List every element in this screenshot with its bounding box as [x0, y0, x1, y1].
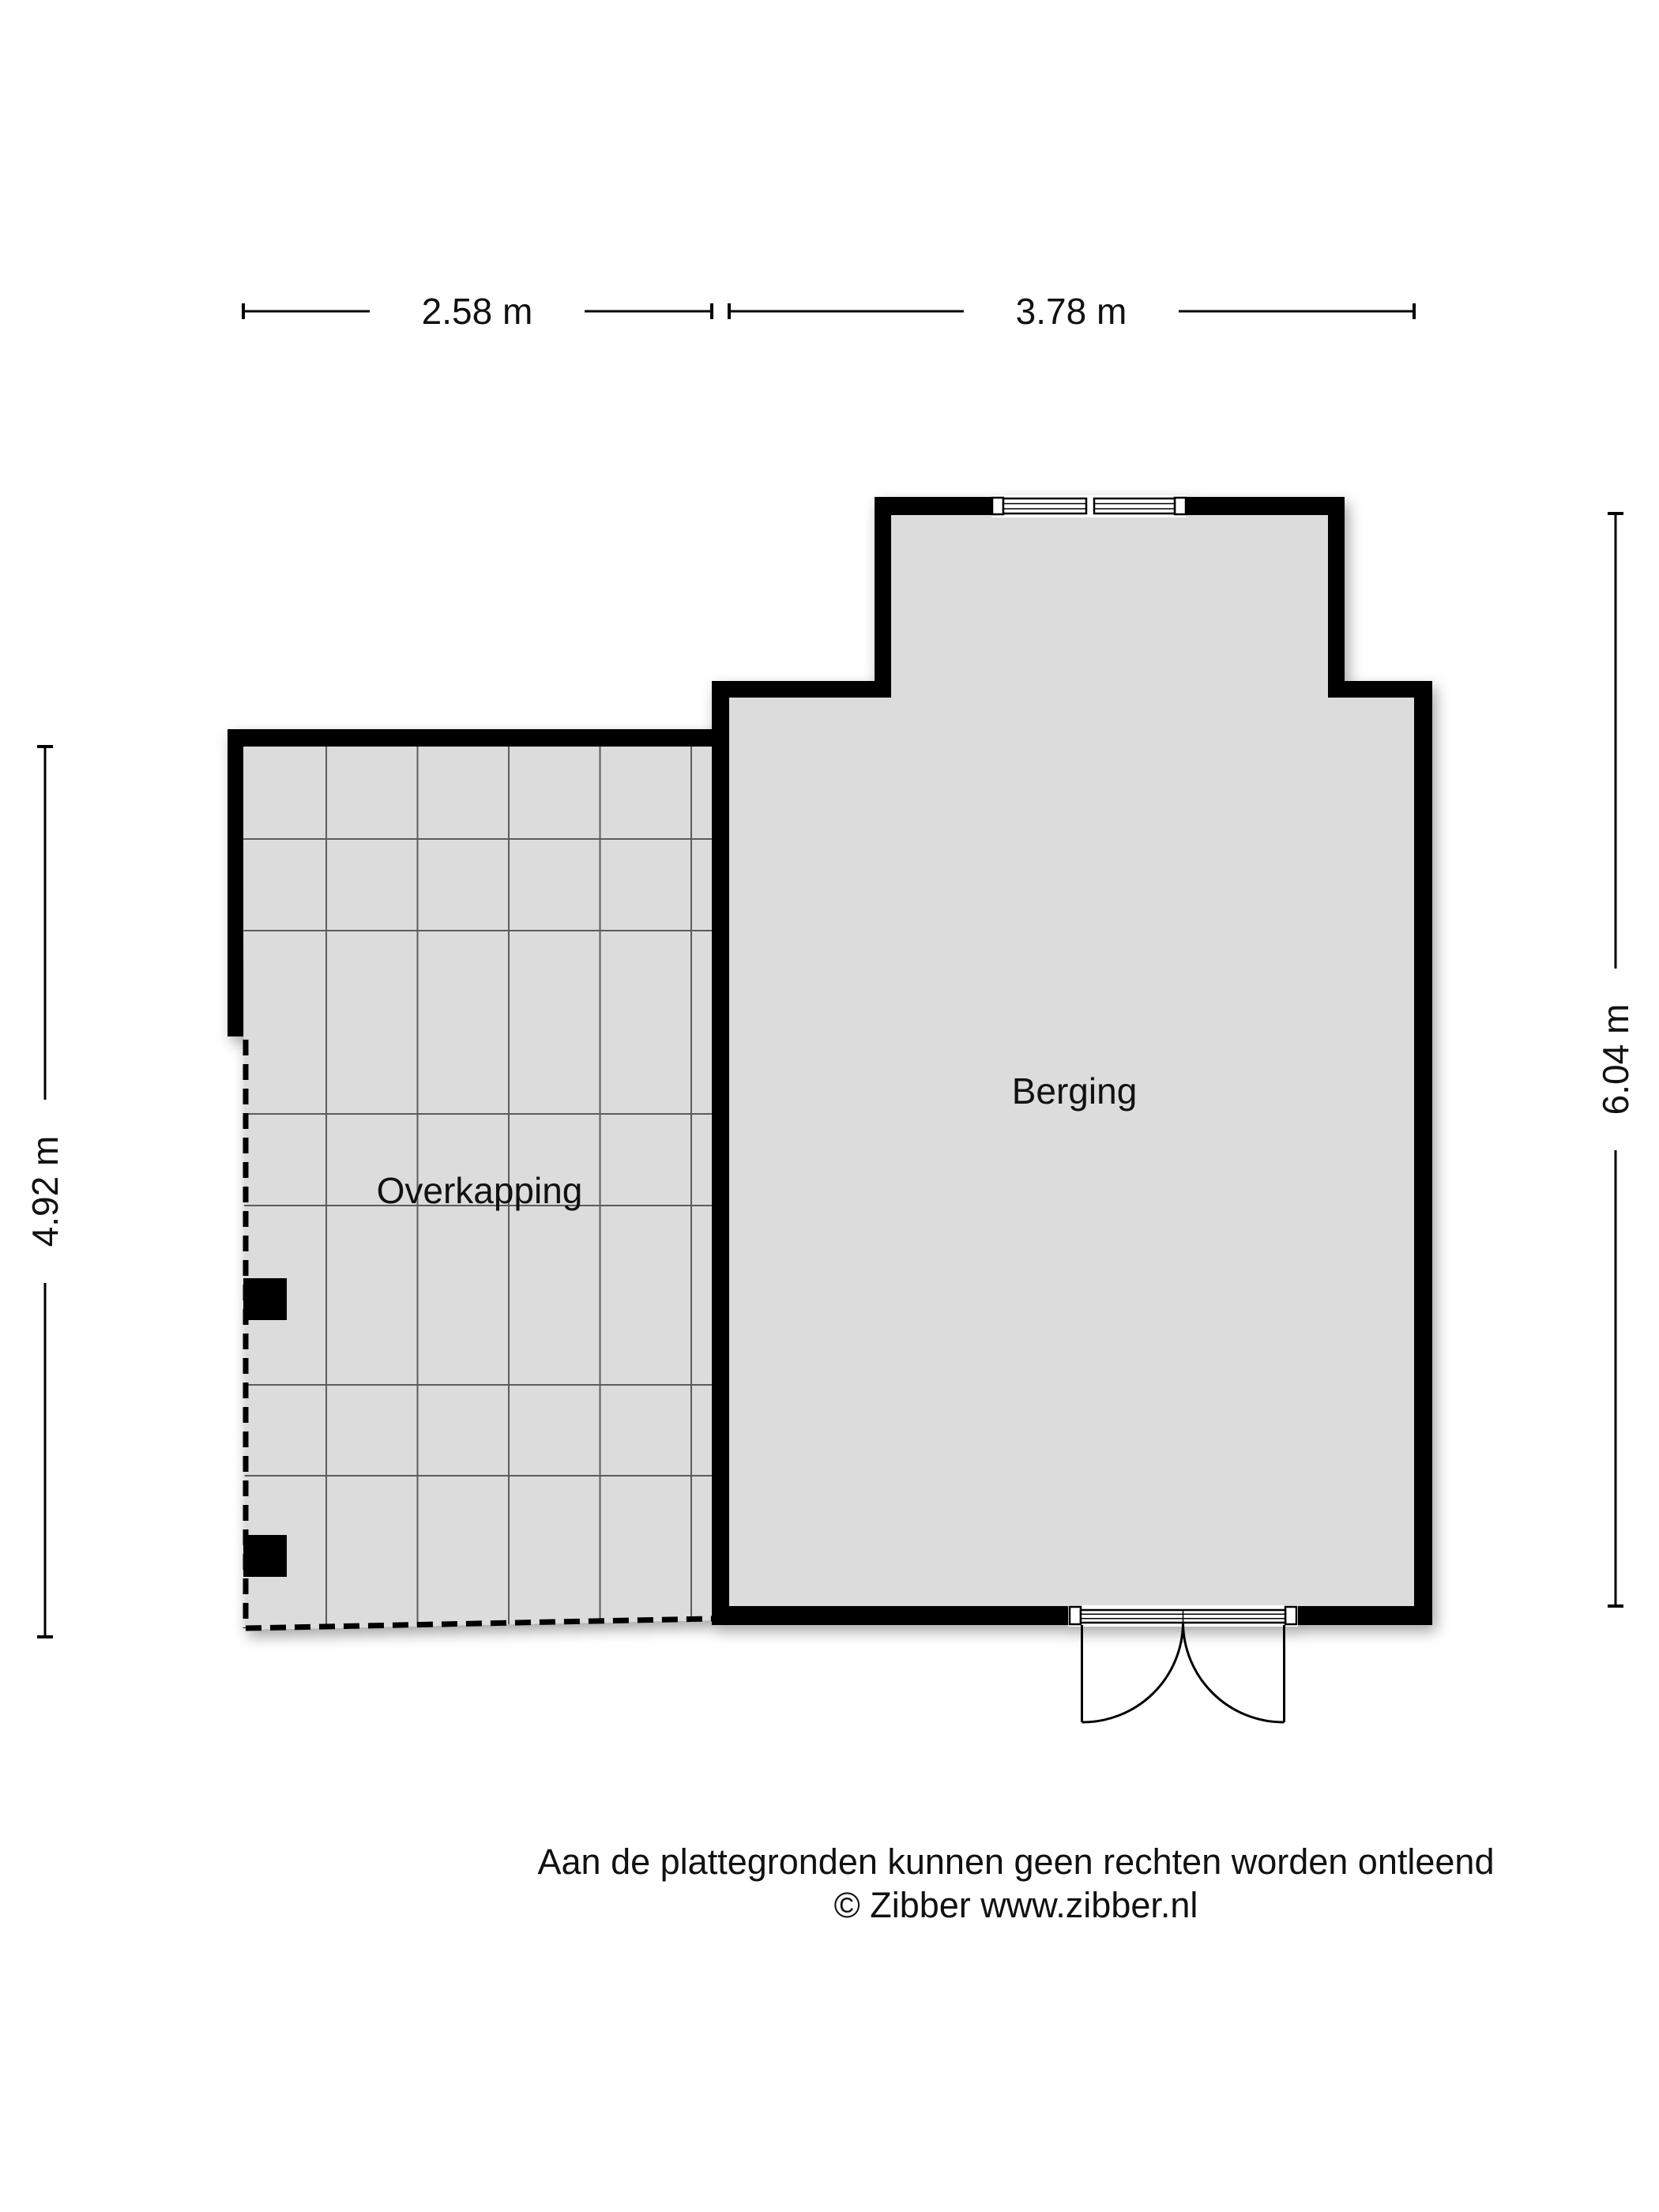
door-swing: [1082, 1623, 1285, 1722]
room-label-berging: Berging: [1012, 1070, 1138, 1112]
overkapping-wall-top: [228, 729, 712, 747]
dimension-label-top-right: 3.78 m: [1016, 291, 1127, 332]
dimension-right: 6.04 m: [1593, 513, 1638, 1606]
plan-body: [228, 495, 1432, 1632]
room-label-overkapping: Overkapping: [377, 1170, 583, 1211]
dimension-top-left: 2.58 m: [243, 289, 712, 333]
post-marker: [243, 1278, 287, 1320]
berging-floor: [729, 515, 1414, 1606]
dimension-label-top-left: 2.58 m: [422, 291, 533, 332]
overkapping-wall-left: [228, 729, 243, 1036]
dimension-top-right: 3.78 m: [729, 289, 1414, 333]
dimension-label-right: 6.04 m: [1595, 1004, 1636, 1115]
footer-credit: © Zibber www.zibber.nl: [834, 1885, 1198, 1925]
floor-plan-canvas: 2.58 m 3.78 m 4.92 m 6.04 m Overkapping …: [0, 0, 1659, 2212]
dimension-label-left: 4.92 m: [24, 1136, 66, 1247]
window-icon: [991, 495, 1187, 517]
dimension-left: 4.92 m: [23, 747, 67, 1637]
post-marker: [243, 1535, 287, 1577]
door-icon: [1068, 1605, 1298, 1627]
footer-disclaimer: Aan de plattegronden kunnen geen rechten…: [538, 1841, 1495, 1882]
floor-plan-page: 2.58 m 3.78 m 4.92 m 6.04 m Overkapping …: [0, 0, 1659, 2212]
